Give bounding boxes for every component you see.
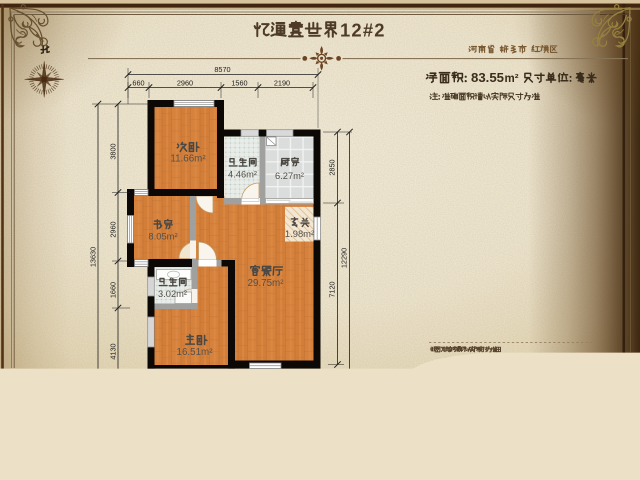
- svg-text:660: 660: [132, 78, 144, 87]
- svg-text:3.02m²: 3.02m²: [158, 289, 187, 299]
- svg-text:29.75m²: 29.75m²: [248, 278, 285, 289]
- svg-text:11.66m²: 11.66m²: [170, 154, 206, 165]
- svg-text:83.55: 83.55: [471, 70, 504, 85]
- svg-text:1660: 1660: [109, 282, 118, 298]
- svg-text:7120: 7120: [328, 281, 337, 297]
- svg-text:2960: 2960: [177, 78, 193, 87]
- svg-text:2960: 2960: [109, 221, 118, 237]
- svg-text:3800: 3800: [109, 143, 118, 159]
- svg-text:4.46m²: 4.46m²: [228, 170, 257, 180]
- svg-text:8.05m²: 8.05m²: [148, 231, 177, 242]
- svg-text:2850: 2850: [328, 159, 337, 175]
- svg-text:16.51m²: 16.51m²: [177, 347, 214, 358]
- svg-text:12290: 12290: [340, 248, 349, 268]
- svg-text:1560: 1560: [231, 78, 247, 87]
- svg-text:12#2: 12#2: [340, 20, 386, 41]
- svg-text:2190: 2190: [274, 78, 290, 87]
- svg-text:6.27m²: 6.27m²: [275, 171, 304, 181]
- svg-text:13630: 13630: [89, 247, 98, 267]
- svg-text:m²: m²: [505, 73, 519, 85]
- svg-text:4130: 4130: [109, 343, 118, 359]
- svg-text:8570: 8570: [214, 65, 230, 74]
- svg-text:1.98m²: 1.98m²: [285, 228, 314, 239]
